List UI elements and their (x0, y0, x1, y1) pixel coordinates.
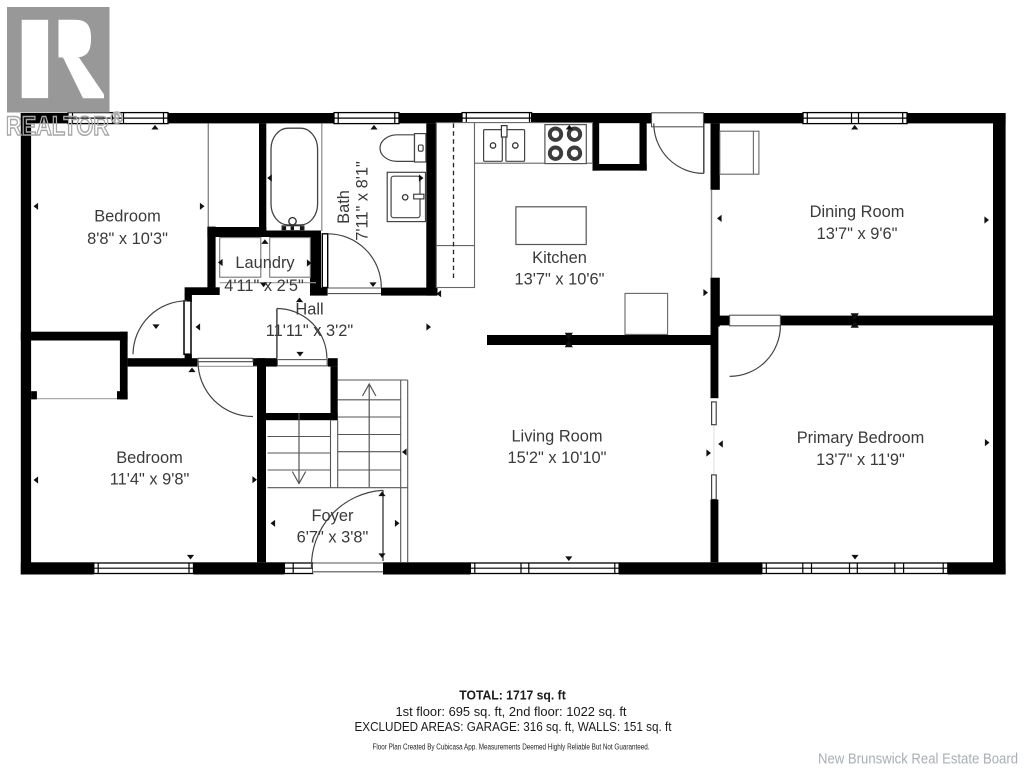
svg-text:Dining Room: Dining Room (810, 203, 905, 221)
svg-text:13'7" x 9'6": 13'7" x 9'6" (817, 225, 898, 243)
svg-text:Living Room: Living Room (511, 428, 602, 446)
svg-text:Bedroom: Bedroom (116, 449, 183, 467)
svg-text:6'7" x 3'8": 6'7" x 3'8" (297, 529, 369, 547)
svg-text:Hall: Hall (295, 301, 323, 319)
svg-text:Bath: Bath (335, 190, 353, 224)
svg-text:TOTAL: 1717 sq. ft: TOTAL: 1717 sq. ft (459, 688, 566, 703)
svg-text:7'11" x 8'1": 7'11" x 8'1" (354, 161, 372, 241)
svg-text:11'4" x 9'8": 11'4" x 9'8" (110, 471, 190, 489)
svg-text:REALTOR: REALTOR (6, 111, 109, 141)
svg-text:8'8" x 10'3": 8'8" x 10'3" (87, 230, 168, 248)
svg-text:Floor Plan Created By Cubicasa: Floor Plan Created By Cubicasa App. Meas… (373, 743, 650, 752)
svg-text:Foyer: Foyer (312, 507, 354, 525)
svg-text:Kitchen: Kitchen (532, 249, 587, 267)
svg-text:EXCLUDED AREAS: GARAGE: 316 sq: EXCLUDED AREAS: GARAGE: 316 sq. ft, WALL… (355, 719, 672, 734)
svg-text:13'7" x 11'9": 13'7" x 11'9" (816, 451, 905, 469)
svg-text:11'11" x 3'2": 11'11" x 3'2" (266, 322, 354, 340)
svg-text:Primary Bedroom: Primary Bedroom (797, 429, 925, 447)
svg-text:15'2" x 10'10": 15'2" x 10'10" (507, 449, 606, 467)
svg-text:®: ® (111, 109, 124, 128)
svg-text:New Brunswick Real Estate Boar: New Brunswick Real Estate Board (818, 751, 1018, 768)
svg-text:4'11" x 2'5": 4'11" x 2'5" (224, 277, 304, 295)
svg-text:1st floor: 695 sq. ft, 2nd flo: 1st floor: 695 sq. ft, 2nd floor: 1022 s… (396, 704, 627, 719)
svg-text:Laundry: Laundry (235, 254, 295, 272)
svg-text:Bedroom: Bedroom (94, 208, 161, 226)
svg-text:13'7" x 10'6": 13'7" x 10'6" (515, 271, 605, 289)
